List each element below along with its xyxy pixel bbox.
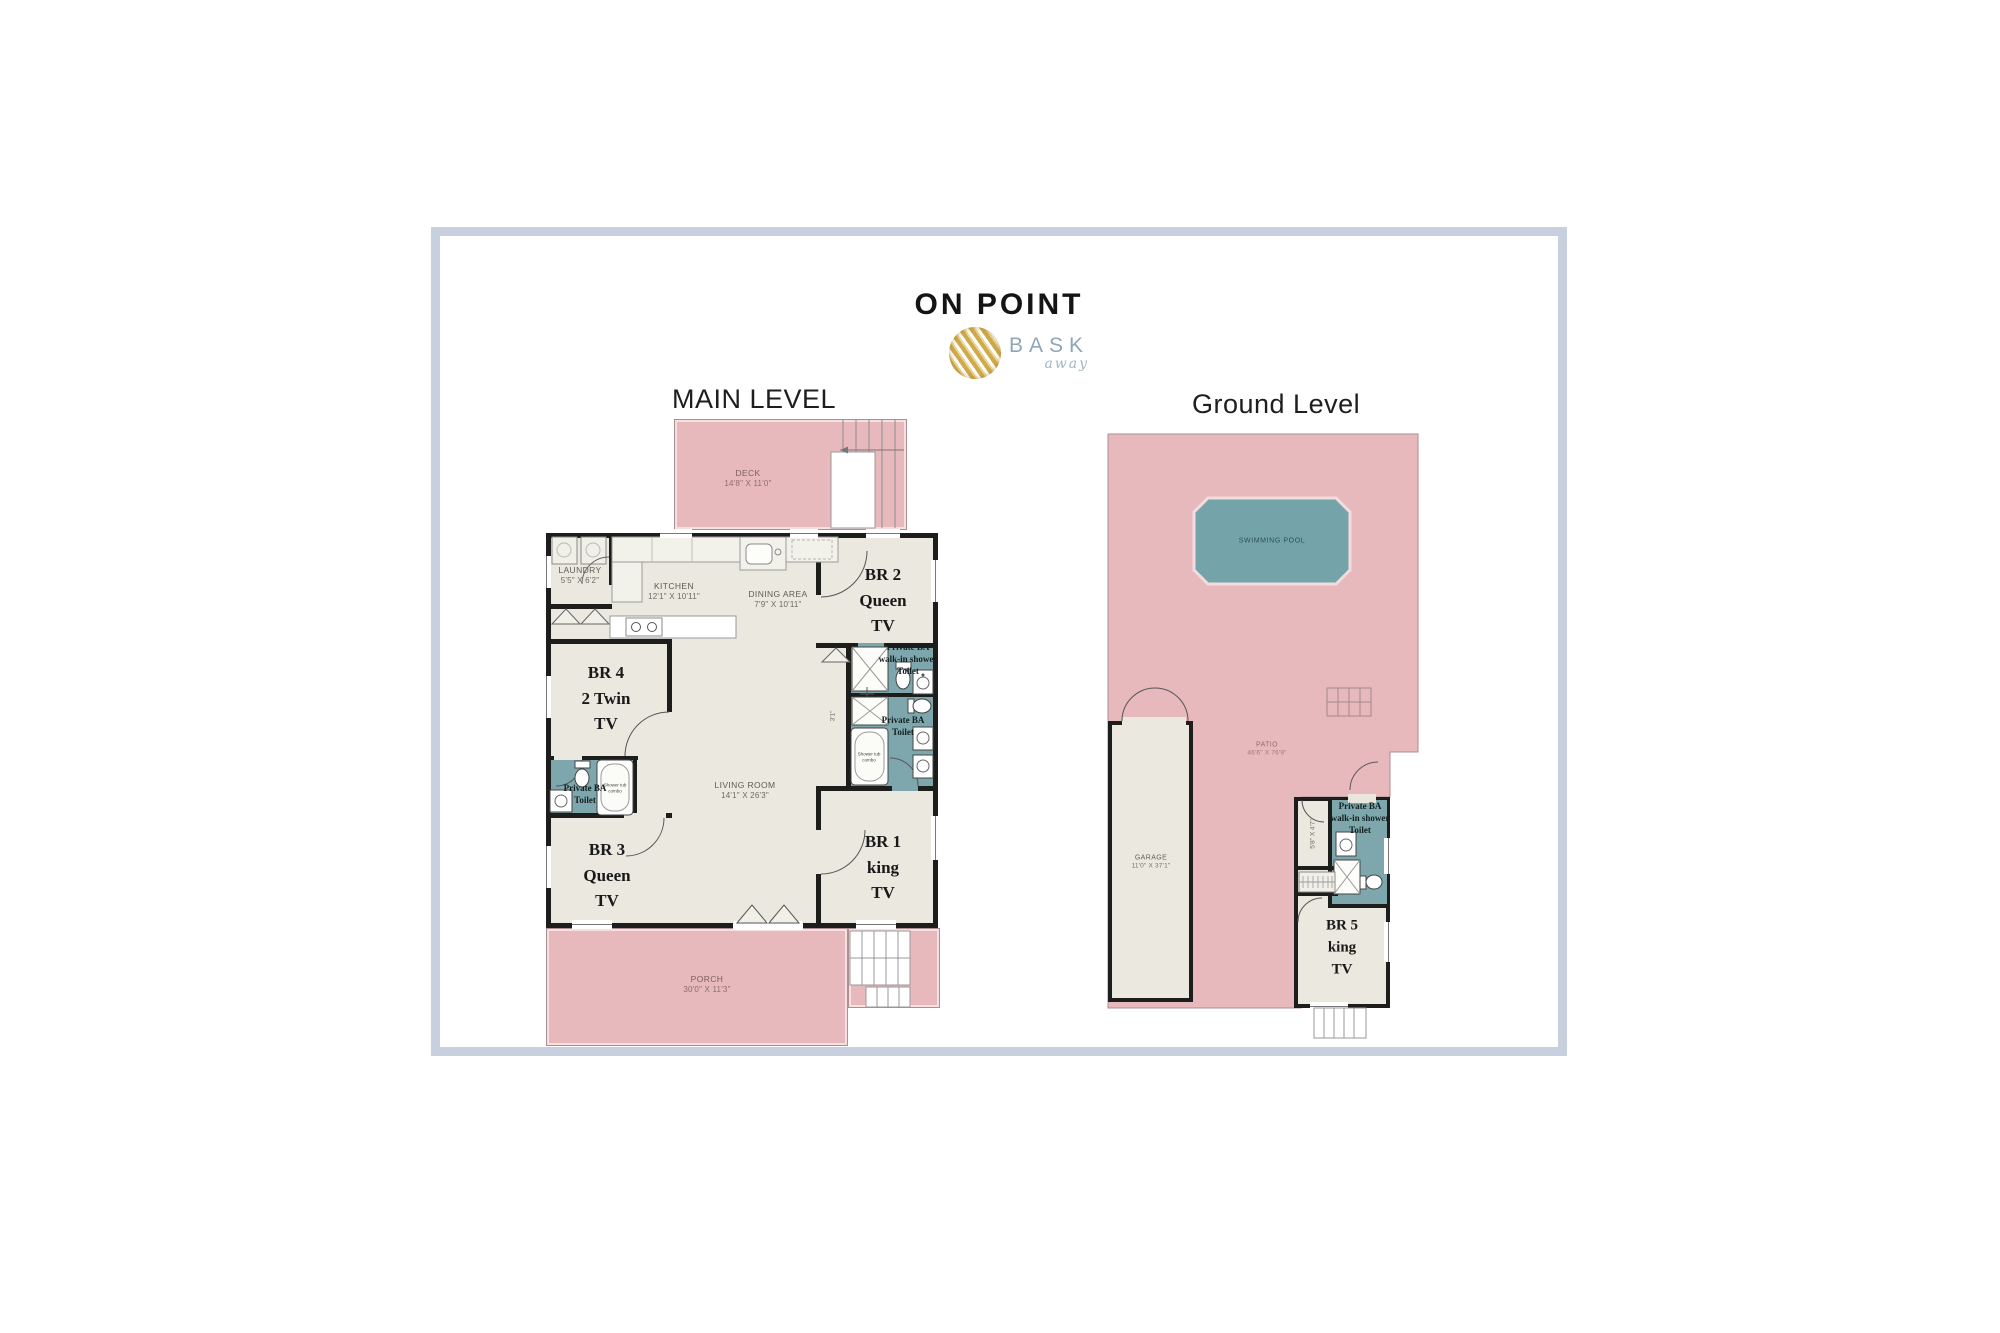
laundry-appliances	[552, 537, 606, 564]
front-door-chevrons	[737, 905, 799, 923]
laundry-label: LAUNDRY 5'5" X 6'2"	[558, 565, 601, 585]
br3-line3: TV	[583, 888, 630, 914]
deck-dim: 14'8" X 11'0"	[724, 479, 771, 488]
br2-line1: BR 2	[859, 562, 906, 588]
br3-line1: BR 3	[583, 837, 630, 863]
br3-line2: Queen	[583, 862, 630, 888]
tub-note-br1: Shower tub combo	[852, 751, 886, 762]
bath-br2-line3: Toilet	[879, 665, 938, 677]
bath-br2-line1: Private BA	[879, 641, 938, 653]
dining-dim: 7'9" X 10'11"	[748, 600, 807, 609]
br4-line2: 2 Twin	[582, 685, 631, 711]
living-name: LIVING ROOM	[714, 780, 775, 790]
br5-closet-rod	[1299, 872, 1335, 892]
br1-line3: TV	[865, 880, 901, 906]
br5-line3: TV	[1326, 959, 1358, 981]
deck-label: DECK 14'8" X 11'0"	[724, 468, 771, 488]
bath-br2-line2: walk-in shower	[879, 653, 938, 665]
bath-br1-line2: Toilet	[882, 726, 925, 738]
br2-line2: Queen	[859, 587, 906, 613]
bath-br1-label: Private BA Toilet	[882, 714, 925, 738]
kitchen-dim: 12'1" X 10'11"	[648, 592, 700, 601]
porch-name: PORCH	[683, 974, 730, 984]
bath-br5-line1: Private BA	[1331, 800, 1390, 812]
garage-label: GARAGE 11'0" X 37'1"	[1132, 855, 1171, 870]
patio-label: PATIO 46'6" X 76'9"	[1247, 742, 1286, 757]
br2-label: BR 2 Queen TV	[859, 562, 906, 639]
laundry-name: LAUNDRY	[558, 565, 601, 575]
tub-note-west: Shower tub combo	[598, 782, 632, 793]
garage-doors	[1122, 688, 1188, 726]
bath-br2-label: Private BA walk-in shower Toilet	[879, 641, 938, 677]
bath-br1-fixtures	[851, 697, 933, 785]
porch-stairs	[850, 931, 910, 1007]
bath-br1-line1: Private BA	[882, 714, 925, 726]
br4-line1: BR 4	[582, 660, 631, 686]
dining-label: DINING AREA 7'9" X 10'11"	[748, 589, 807, 609]
bath-br5-line2: walk-in shower	[1331, 812, 1390, 824]
br2-line3: TV	[859, 613, 906, 639]
laundry-dim: 5'5" X 6'2"	[558, 576, 601, 585]
living-dim: 14'1" X 26'3"	[714, 791, 775, 800]
br4-line3: TV	[582, 711, 631, 737]
br5-line2: king	[1326, 937, 1358, 959]
deck-stairs	[831, 420, 904, 528]
kitchen-name: KITCHEN	[648, 581, 700, 591]
bath-west-line2: Toilet	[564, 794, 607, 806]
pool-label: SWIMMING POOL	[1239, 538, 1306, 545]
br3-label: BR 3 Queen TV	[583, 837, 630, 914]
closet-door-chevron	[822, 648, 850, 662]
porch-dim: 30'0" X 11'3"	[683, 985, 730, 994]
br4-label: BR 4 2 Twin TV	[582, 660, 631, 737]
br5-line1: BR 5	[1326, 915, 1358, 937]
kitchen-label: KITCHEN 12'1" X 10'11"	[648, 581, 700, 601]
patio-br5-door	[1348, 762, 1378, 803]
br1-line1: BR 1	[865, 829, 901, 855]
kitchen-island	[610, 616, 736, 638]
garage-name: GARAGE	[1132, 855, 1171, 862]
living-label: LIVING ROOM 14'1" X 26'3"	[714, 780, 775, 800]
br5-closet-dim: 5'8" X 4'7"	[1310, 819, 1317, 849]
floorplan-page: ON POINT BASK away MAIN LEVEL Ground Lev…	[0, 0, 2000, 1333]
fixtures-layer	[0, 0, 2000, 1333]
bath-br5-label: Private BA walk-in shower Toilet	[1331, 800, 1390, 836]
patio-name: PATIO	[1247, 742, 1286, 749]
main-closet-dim: 3'1"	[830, 711, 837, 722]
br1-label: BR 1 king TV	[865, 829, 901, 906]
dining-name: DINING AREA	[748, 589, 807, 599]
patio-dim: 46'6" X 76'9"	[1247, 750, 1286, 757]
porch-label: PORCH 30'0" X 11'3"	[683, 974, 730, 994]
garage-dim: 11'0" X 37'1"	[1132, 863, 1171, 870]
bath-br5-line3: Toilet	[1331, 824, 1390, 836]
br1-line2: king	[865, 854, 901, 880]
br5-stairs	[1314, 1008, 1366, 1038]
deck-name: DECK	[724, 468, 771, 478]
br5-label: BR 5 king TV	[1326, 915, 1358, 980]
